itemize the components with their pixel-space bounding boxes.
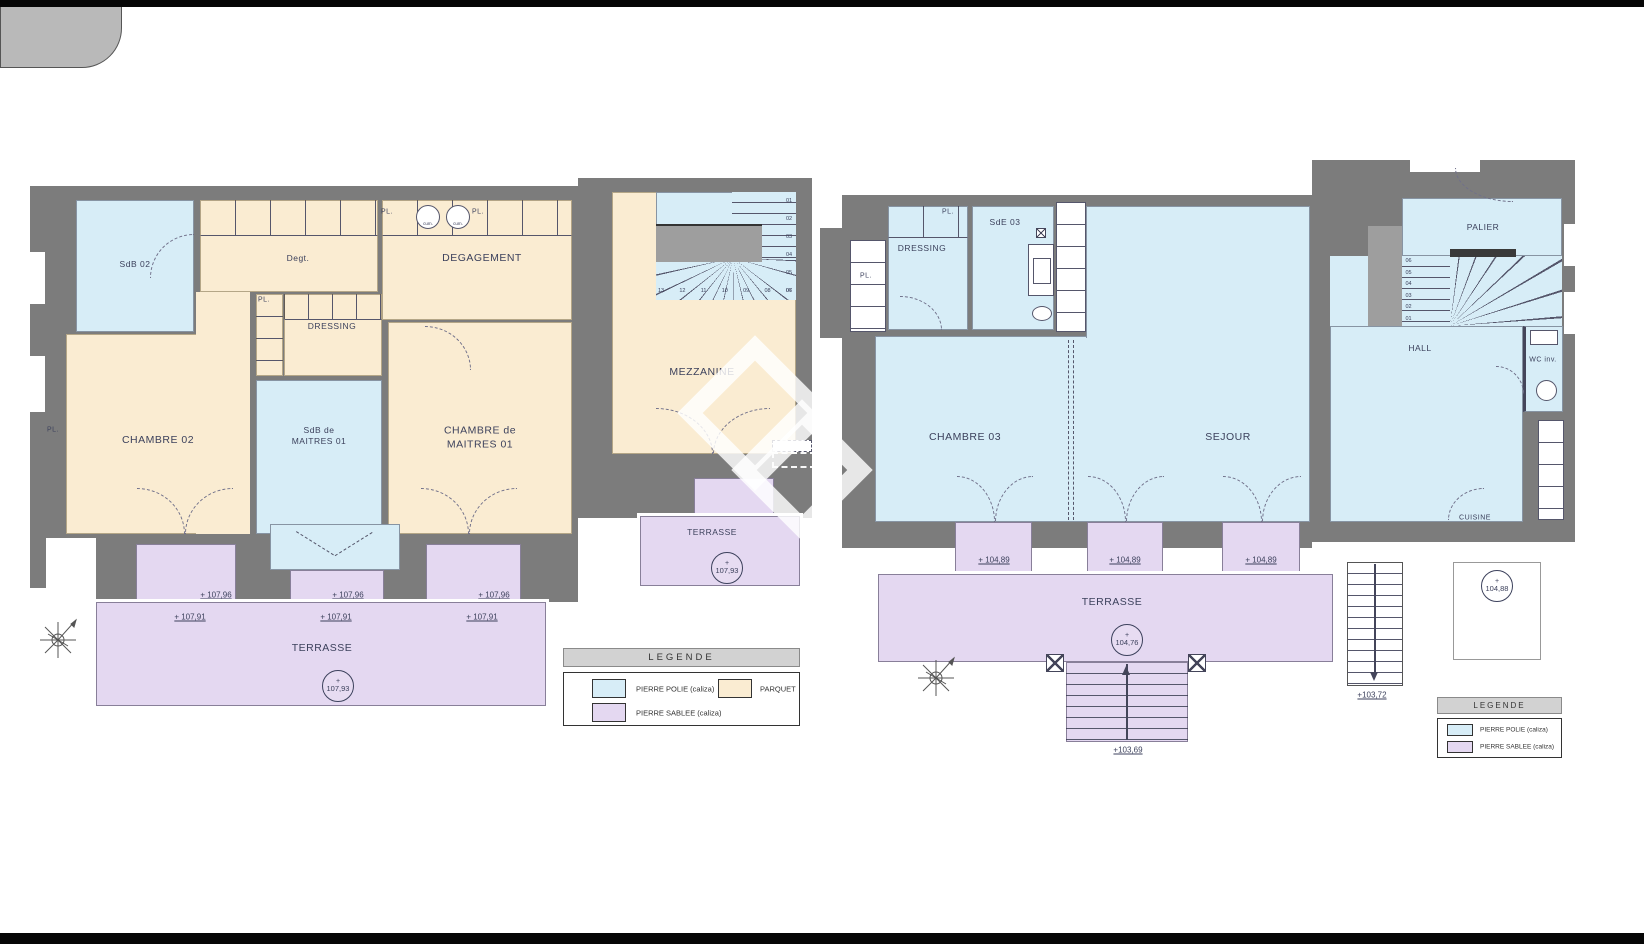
top-black-bar [0,0,1644,7]
compass-icon [32,612,84,664]
room-label: DRESSING [898,243,946,253]
legend-label: PIERRE SABLEE (caliza) [636,709,721,718]
window [30,252,45,304]
stair-void [0,0,122,68]
closet-column [850,240,886,332]
legend-label: PARQUET [760,685,796,694]
closet-label: PL. [258,297,270,304]
closet-label: PL. [472,209,484,216]
room-label: SdE 03 [990,217,1021,227]
elevation-circle: + 104,88 [1481,570,1513,602]
wc-cistern [1530,330,1558,345]
stair-edge [1450,249,1516,257]
legend-label: PIERRE SABLEE (caliza) [1480,744,1554,751]
elevation-circle: + 107,93 [322,670,354,702]
room-label: PALIER [1467,222,1500,232]
hall-strip [1330,256,1368,326]
room-label: WC inv. [1529,357,1556,364]
stair-num: 12 [679,288,685,294]
elevation-label: + 107,91 [174,613,205,622]
glass-partition [1073,340,1074,520]
wall [30,538,46,588]
room-label: TERRASSE [1082,596,1143,608]
stair-num: 01 [784,198,794,204]
closet-label: PL. [381,209,393,216]
stair-num: 01 [1404,316,1413,322]
stair-num: 02 [784,216,794,222]
glass-partition [1068,340,1069,520]
stair-num: 06 [784,288,794,294]
room-label: SEJOUR [1205,431,1251,443]
wall [820,228,852,338]
stair-num: 04 [784,252,794,258]
legend-swatch-parquet [718,679,752,698]
room-label: SdB 02 [120,259,151,269]
legend-swatch-pierre-sablee [592,703,626,722]
cum-label: cum. [453,221,463,226]
window [1564,224,1575,266]
stair-num: 11 [701,288,707,294]
elevation-label: + 107,91 [320,613,351,622]
elevation-label: +103,69 [1113,746,1142,755]
room-label: HALL [1408,343,1431,353]
wc-icon [1536,380,1557,401]
room-degagement [382,236,572,320]
stair-num: 10 [722,288,728,294]
closet-label: PL. [47,427,59,434]
elevation-circle: + 107,93 [711,552,743,584]
legend-swatch-pierre-polie [1447,724,1473,736]
room-label: CHAMBRE 03 [929,431,1001,443]
room-sdb-maitres [256,380,382,534]
window [30,356,45,412]
stair-num: 13 [658,288,664,294]
terrace-step [1087,522,1163,574]
legend-label: PIERRE POLIE (caliza) [1480,727,1548,734]
stair-num: 03 [1404,293,1413,299]
room-label: TERRASSE [687,527,737,537]
stair-num: 08 [764,288,770,294]
elevation-label: + 107,96 [478,591,509,600]
cum-label: cum. [423,221,433,226]
closet-column [256,294,283,376]
closet-row [284,294,382,320]
legend-header: LEGENDE [1437,697,1562,714]
closet-label: PL. [860,273,872,280]
shower-tray [1033,258,1051,284]
legend-title: LEGENDE [648,652,714,663]
room-label: TERRASSE [292,642,353,654]
water-heater-icon: cum. [446,205,470,229]
pillar [1368,226,1402,328]
stair-num: 06 [1404,258,1413,264]
room-sejour-upper [1086,206,1310,338]
stair-num: 04 [1404,281,1413,287]
elevation-value: 107,93 [327,685,350,693]
elevation-label: + 107,96 [200,591,231,600]
window [1564,292,1575,334]
closet-row [200,200,378,236]
stair-num: 09 [743,288,749,294]
terrasse-main [878,574,1333,662]
legend-swatch-pierre-polie [592,679,626,698]
elevation-label: + 104,89 [1109,556,1140,565]
post-icon [1188,654,1206,672]
water-heater-icon: cum. [416,205,440,229]
radiator-symbol [772,440,812,452]
elevation-circle: + 104,76 [1111,624,1143,656]
elevation-label: + 107,96 [332,591,363,600]
terrace-step [694,478,774,516]
stair-num: 03 [784,234,794,240]
wc-icon [1032,306,1052,321]
elevation-value: 104,76 [1116,639,1139,647]
stair-landing [656,224,762,262]
stair-numbers: 010203040506 [784,198,794,294]
stair-num: 05 [1404,270,1413,276]
stair-centerline [1374,564,1376,676]
compass-icon [910,650,962,702]
room-label: CUISINE [1459,515,1491,522]
room-label: SdB de MAITRES 01 [283,425,355,447]
elevation-label: +103,72 [1357,691,1386,700]
room-label: DEGAGEMENT [442,252,522,264]
stair-num: 05 [784,270,794,276]
legend-title: LEGENDE [1473,701,1525,710]
stair-numbers: 060504030201 [1404,258,1413,322]
elevation-value: 104,88 [1486,585,1509,593]
legend-label: PIERRE POLIE (caliza) [636,685,714,694]
tech-column [1056,202,1086,332]
elevation-label: + 107,91 [466,613,497,622]
bottom-black-bar [0,933,1644,944]
room-label: CHAMBRE 02 [122,434,194,446]
floorplan-canvas: 13121110090807 010203040506 cum. cum. + … [0,0,1644,944]
legend-swatch-pierre-sablee [1447,741,1473,753]
closet-label: PL. [942,209,954,216]
room-label: DRESSING [308,321,356,331]
closet-row [382,200,572,236]
room-label: Degt. [287,253,310,263]
room-degt [200,236,378,292]
room-label: MEZZANINE [669,366,734,378]
elevation-label: + 104,89 [978,556,1009,565]
terrace-step [955,522,1032,574]
terrace-step [1222,522,1300,574]
post-icon [1046,654,1064,672]
cabinet-column [1538,420,1564,520]
down-arrow-icon [1370,672,1378,681]
room-hall [1330,326,1523,522]
stair-centerline [1126,664,1128,740]
drain-icon [1036,228,1046,238]
elevation-value: 107,93 [716,567,739,575]
stair-num: 02 [1404,304,1413,310]
bay-window [270,524,400,570]
room-label: CHAMBRE de MAITRES 01 [424,424,536,451]
closet-row [888,206,968,238]
elevation-label: + 104,89 [1245,556,1276,565]
legend-header: LEGENDE [563,648,800,667]
stairs-fan [1450,256,1562,326]
stair-numbers: 13121110090807 [658,288,792,294]
up-arrow-icon [1122,666,1130,675]
